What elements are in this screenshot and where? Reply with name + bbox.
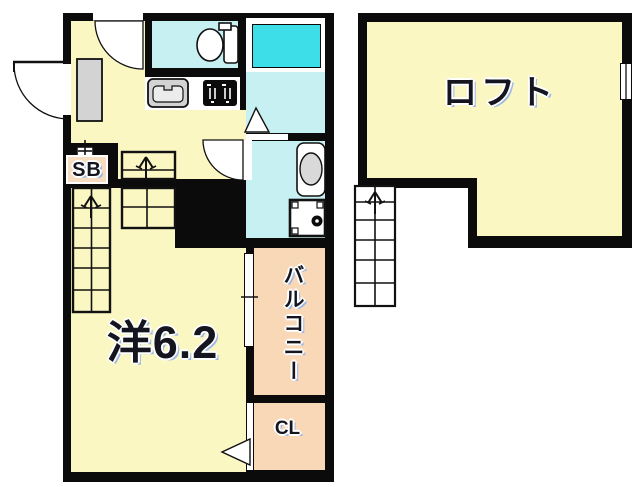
closet-door xyxy=(246,403,254,470)
bathroom-floor xyxy=(246,72,325,133)
entrance-door-opening xyxy=(93,13,143,21)
floor-plan-canvas: 洋6.2 ロフト バルコニー CL SB xyxy=(0,0,640,487)
exterior-door-opening xyxy=(63,64,71,115)
void-under-stairs xyxy=(175,179,246,248)
exterior-door-arc xyxy=(13,61,70,119)
washroom-door-opening xyxy=(243,140,252,180)
toilet-room xyxy=(152,21,238,68)
kitchen-counter xyxy=(145,77,240,110)
stairs-loft xyxy=(355,186,395,306)
shoe-box-label: SB xyxy=(72,160,102,180)
main-room-label: 洋6.2 xyxy=(70,320,255,365)
closet-label: CL xyxy=(274,418,301,440)
balcony-label: バルコニー xyxy=(275,253,303,395)
loft-floor-right xyxy=(477,22,622,236)
stair-wall-band xyxy=(118,179,175,188)
loft-window xyxy=(620,63,632,100)
loft-label: ロフト xyxy=(420,76,580,110)
washroom-floor xyxy=(246,141,325,238)
bathtub xyxy=(252,24,321,68)
shoe-box: SB xyxy=(66,155,108,184)
entrance-floor xyxy=(71,21,145,110)
bath-door-track xyxy=(246,133,288,141)
